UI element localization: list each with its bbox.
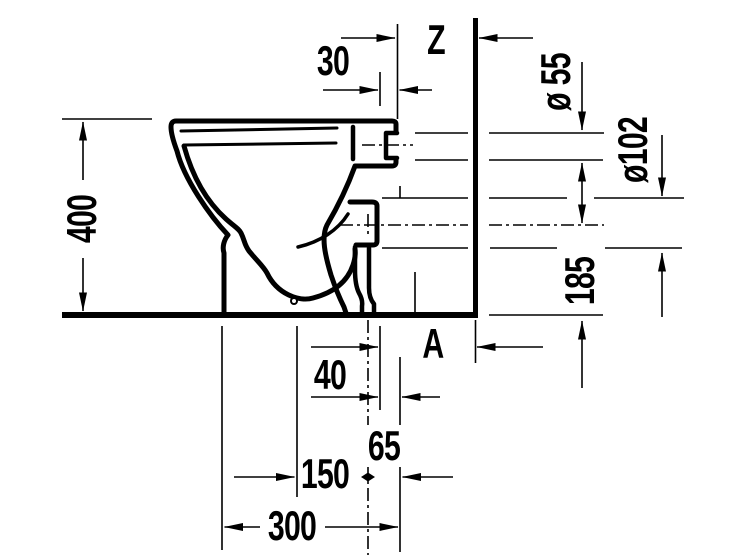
dim-label-150: 150 — [299, 453, 352, 495]
dim-label-185: 185 — [559, 257, 601, 305]
drawing-linework — [0, 0, 740, 555]
dim-label-300: 300 — [268, 505, 316, 547]
dim-label-a: A — [422, 323, 443, 365]
technical-drawing-canvas: 400 30 Z ø 55 ø102 185 A 40 65 150 300 — [0, 0, 740, 555]
bowl-outer-edge — [171, 121, 396, 313]
toilet-outline — [171, 121, 397, 313]
diamond-terminator — [361, 473, 375, 482]
dim-label-dia102: ø102 — [612, 117, 654, 183]
dim-label-dia55: ø 55 — [535, 53, 577, 111]
wall-and-floor — [62, 18, 478, 315]
dim-label-z: Z — [427, 19, 445, 61]
outlet-channel-right — [369, 248, 374, 313]
dim-label-400: 400 — [61, 195, 103, 243]
drain-mark — [291, 298, 297, 304]
outlet-pipe — [350, 202, 377, 245]
outlet-channel-left — [355, 247, 362, 313]
dim-label-40: 40 — [314, 354, 346, 396]
rim-lines — [181, 128, 337, 145]
dim-label-65: 65 — [366, 425, 403, 467]
dim-label-30: 30 — [317, 40, 349, 82]
